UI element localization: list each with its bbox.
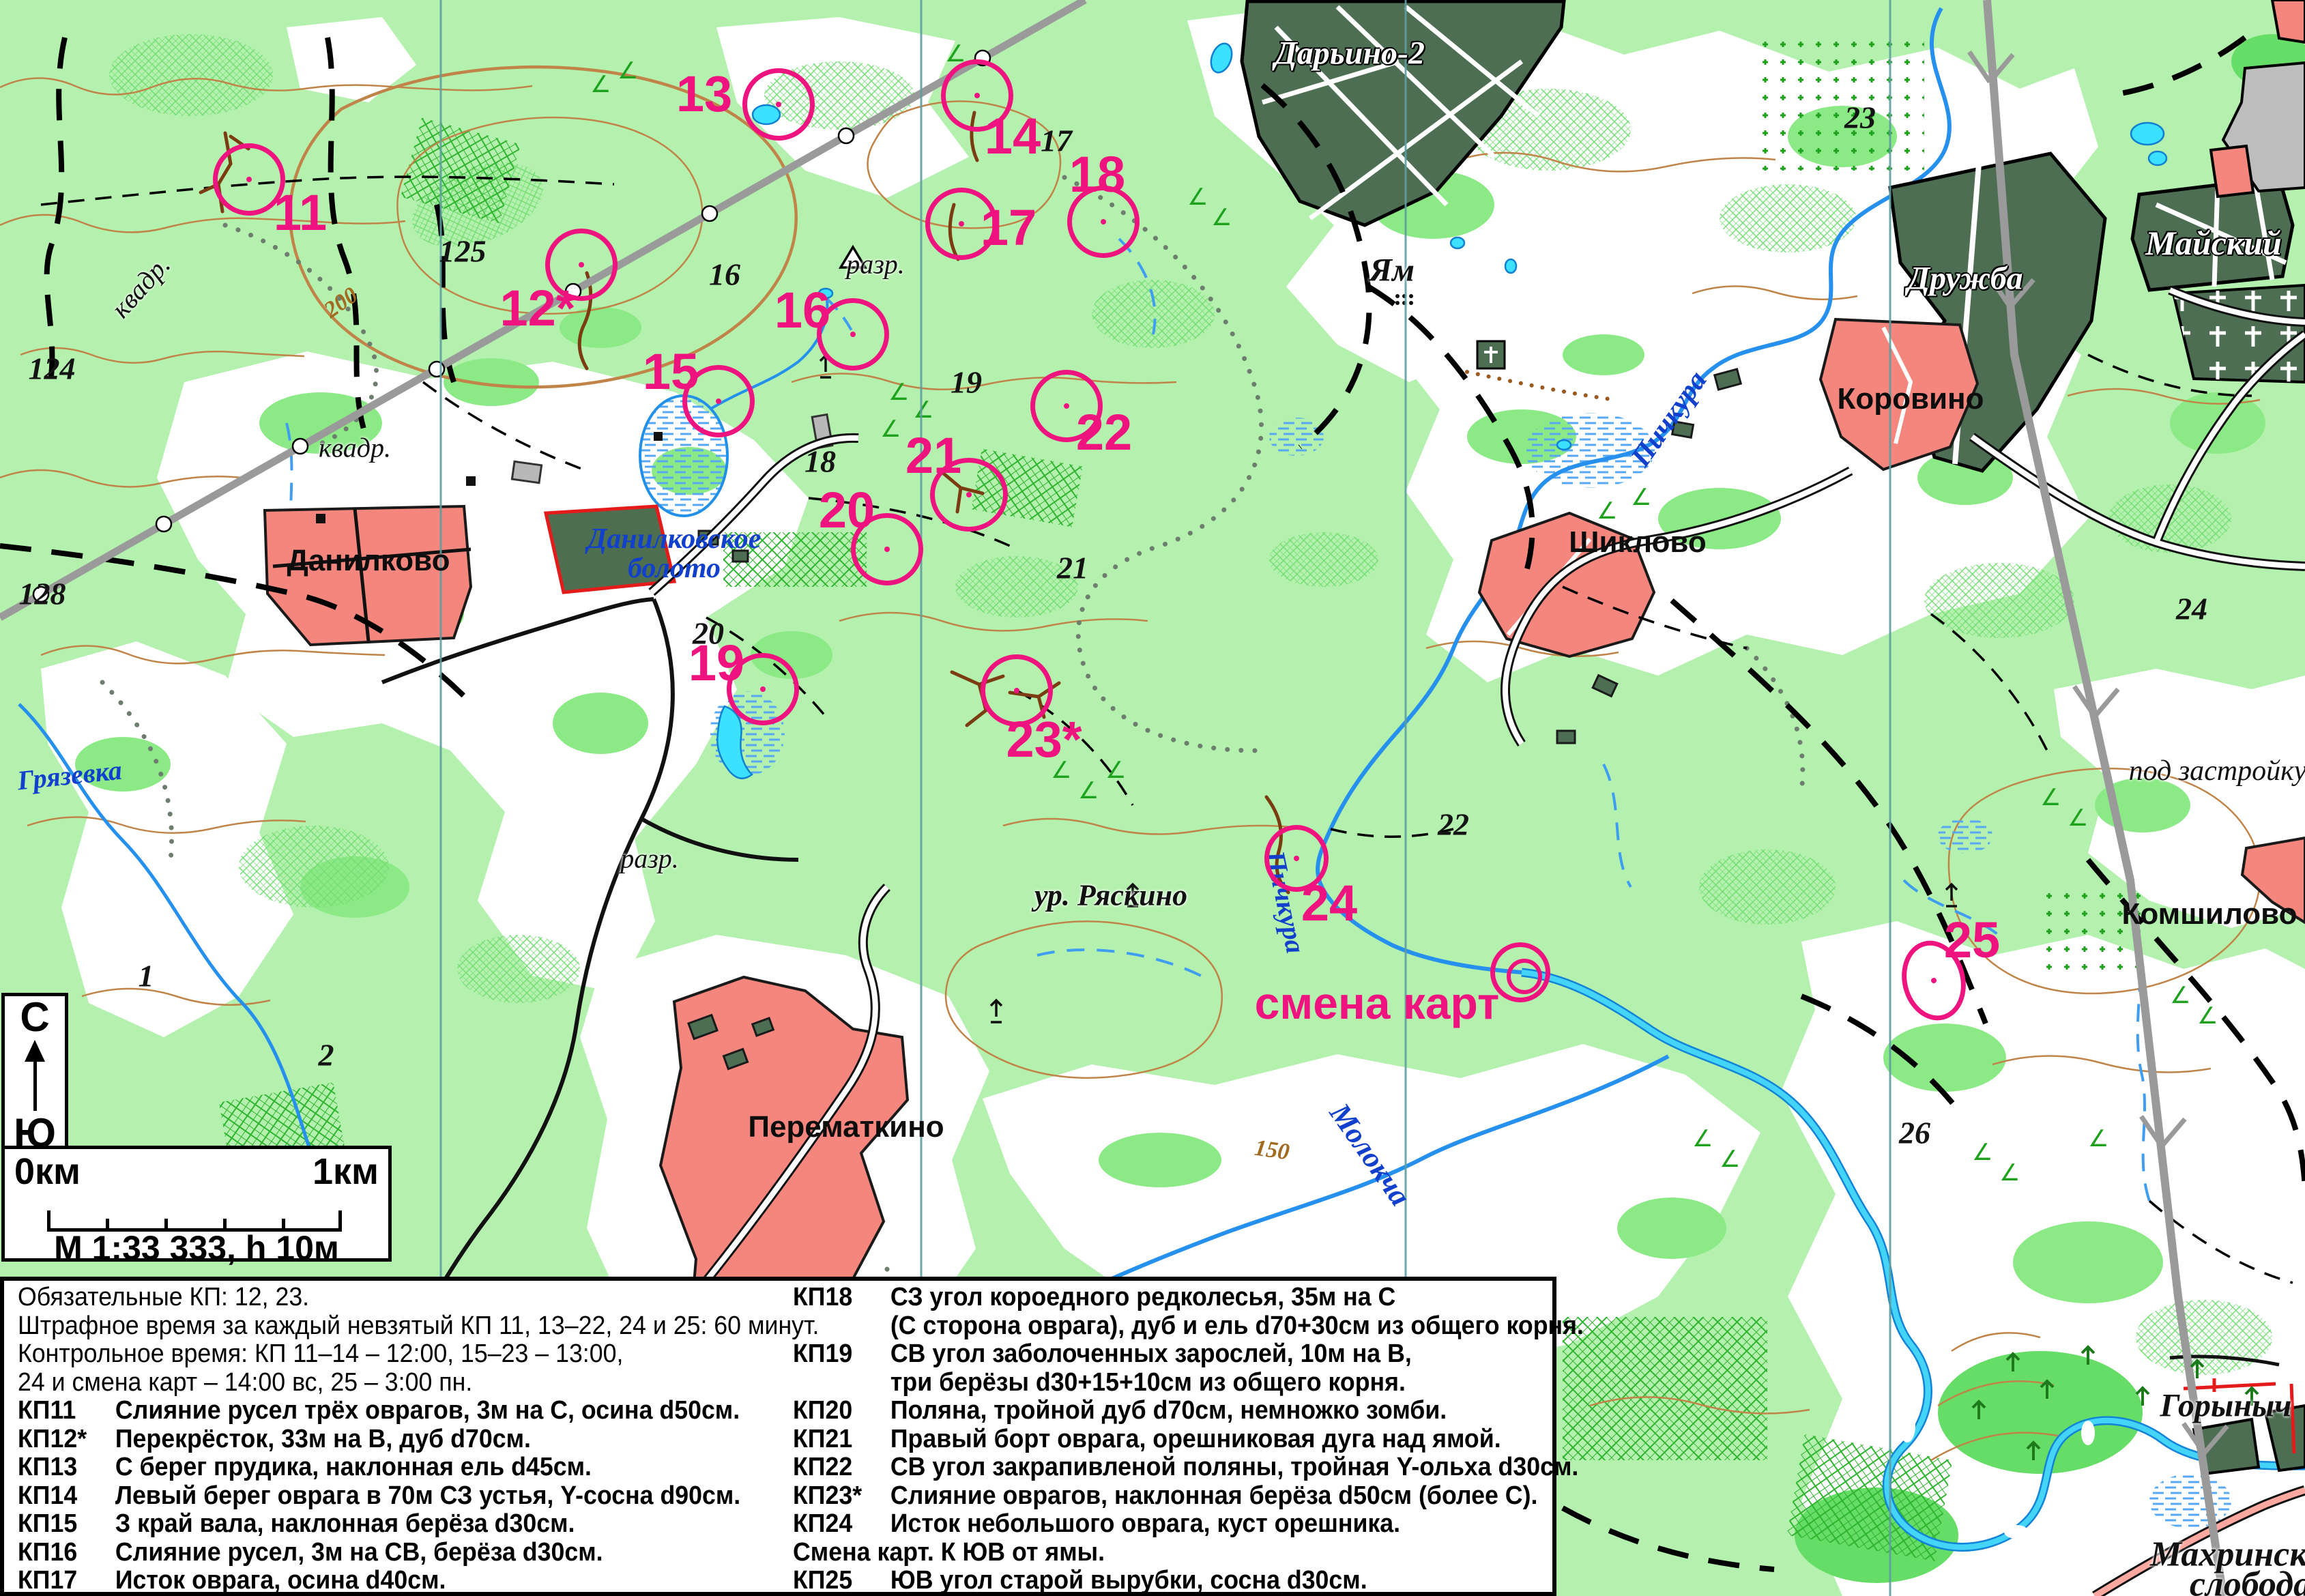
- description-row: КП22СВ угол закрапивленой поляны, тройна…: [793, 1453, 1550, 1481]
- cp-description-text: Левый берег оврага в 70м СЗ устья, Y-сос…: [115, 1481, 740, 1511]
- cp-code: КП21: [793, 1425, 890, 1454]
- description-row: 24 и смена карт – 14:00 вс, 25 – 3:00 пн…: [18, 1368, 774, 1397]
- compass-box: С Ю: [1, 993, 68, 1158]
- orienteering-map-stage: ∠∠∠ ∠∠∠ ∠∠∠ ∠∠∠ ∠∠∠ ∠∠∠ ∠∠∠ ∠∠∠ Данилков…: [0, 0, 2305, 1596]
- description-row: КП11Слияние русел трёх оврагов, 3м на С,…: [18, 1396, 774, 1425]
- cp-description-text: ЮВ угол старой вырубки, сосна d30см.: [890, 1566, 1367, 1595]
- cp-description-text: Обязательные КП: 12, 23.: [18, 1283, 309, 1312]
- compass-north-label: С: [20, 999, 49, 1036]
- control-circle-13: [742, 68, 815, 141]
- description-row: КП21Правый борт оврага, орешниковая дуга…: [793, 1425, 1550, 1453]
- control-number-14: 14: [985, 111, 1041, 162]
- cp-code: КП20: [793, 1396, 890, 1425]
- control-descriptions-box: Обязательные КП: 12, 23.Штрафное время з…: [0, 1277, 1556, 1596]
- description-row: КП20Поляна, тройной дуб d70см, немножко …: [793, 1396, 1550, 1425]
- cp-description-text: три берёзы d30+15+10см из общего корня.: [890, 1368, 1406, 1397]
- scale-box: 0км 1км М 1:33 333, h 10м: [1, 1146, 392, 1262]
- cp-code: КП23*: [793, 1481, 890, 1511]
- cp-description-text: Перекрёсток, 33м на В, дуб d70см.: [115, 1425, 531, 1454]
- cp-description-text: Исток оврага, осина d40см.: [115, 1566, 446, 1595]
- description-row: (С сторона оврага), дуб и ель d70+30см и…: [793, 1311, 1550, 1340]
- cp-code: КП19: [793, 1339, 890, 1369]
- control-number-20: 20: [819, 485, 875, 536]
- control-number-15: 15: [643, 347, 699, 397]
- description-row: КП15З край вала, наклонная берёза d30см.: [18, 1509, 774, 1538]
- description-row: три берёзы d30+15+10см из общего корня.: [793, 1368, 1550, 1397]
- cp-description-text: 24 и смена карт – 14:00 вс, 25 – 3:00 пн…: [18, 1368, 472, 1397]
- cp-description-text: З край вала, наклонная берёза d30см.: [115, 1509, 575, 1539]
- control-number-13: 13: [676, 69, 732, 119]
- description-row: КП12*Перекрёсток, 33м на В, дуб d70см.: [18, 1425, 774, 1453]
- cp-description-text: Правый борт оврага, орешниковая дуга над…: [890, 1425, 1501, 1454]
- control-number-19: 19: [688, 638, 744, 688]
- control-number-11: 11: [274, 188, 327, 238]
- cp-code: КП14: [18, 1481, 115, 1511]
- cp-description-text: Смена карт. К ЮВ от ямы.: [793, 1538, 1105, 1567]
- map-scale-text: М 1:33 333, h 10м: [5, 1228, 388, 1268]
- cp-description-text: Поляна, тройной дуб d70см, немножко зомб…: [890, 1396, 1447, 1425]
- descriptions-left-column: Обязательные КП: 12, 23.Штрафное время з…: [18, 1283, 774, 1595]
- cp-description-text: Слияние оврагов, наклонная берёза d50см …: [890, 1481, 1538, 1511]
- cp-code: КП25: [793, 1566, 890, 1595]
- description-row: КП17Исток оврага, осина d40см.: [18, 1566, 774, 1595]
- description-row: КП13С берег прудика, наклонная ель d45см…: [18, 1453, 774, 1481]
- cp-code: КП17: [18, 1566, 115, 1595]
- description-row: КП19СВ угол заболоченных зарослей, 10м н…: [793, 1339, 1550, 1368]
- cp-description-text: СВ угол закрапивленой поляны, тройная Y-…: [890, 1453, 1578, 1482]
- cp-description-text: СЗ угол короедного редколесья, 35м на С: [890, 1283, 1395, 1312]
- control-number-12*: 12*: [499, 283, 575, 334]
- description-row: Обязательные КП: 12, 23.: [18, 1283, 774, 1311]
- cp-code: КП18: [793, 1283, 890, 1312]
- cp-code: КП24: [793, 1509, 890, 1539]
- description-row: КП23*Слияние оврагов, наклонная берёза d…: [793, 1481, 1550, 1510]
- cp-code: КП11: [18, 1396, 115, 1425]
- control-number-17: 17: [981, 203, 1036, 253]
- cp-code: КП15: [18, 1509, 115, 1539]
- north-arrow-icon: [25, 1040, 45, 1111]
- description-row: КП18СЗ угол короедного редколесья, 35м н…: [793, 1283, 1550, 1311]
- cp-description-text: Контрольное время: КП 11–14 – 12:00, 15–…: [18, 1339, 623, 1369]
- cp-description-text: Исток небольшого оврага, куст орешника.: [890, 1509, 1400, 1539]
- scale-zero-label: 0км: [14, 1150, 81, 1193]
- control-number-22: 22: [1076, 407, 1132, 458]
- scale-one-km-label: 1км: [313, 1150, 379, 1193]
- cp-description-text: (С сторона оврага), дуб и ель d70+30см и…: [890, 1311, 1584, 1341]
- control-number-23*: 23*: [1006, 714, 1082, 765]
- control-number-21: 21: [905, 431, 961, 481]
- description-row: КП24Исток небольшого оврага, куст орешни…: [793, 1509, 1550, 1538]
- cp-description-text: Слияние русел трёх оврагов, 3м на С, оси…: [115, 1396, 740, 1425]
- description-row: КП16Слияние русел, 3м на СВ, берёза d30с…: [18, 1538, 774, 1567]
- description-row: Контрольное время: КП 11–14 – 12:00, 15–…: [18, 1339, 774, 1368]
- description-row: КП14Левый берег оврага в 70м СЗ устья, Y…: [18, 1481, 774, 1510]
- cp-code: КП16: [18, 1538, 115, 1567]
- control-number-18: 18: [1069, 149, 1125, 200]
- cp-description-text: Штрафное время за каждый невзятый КП 11,…: [18, 1311, 819, 1341]
- description-row: Штрафное время за каждый невзятый КП 11,…: [18, 1311, 774, 1340]
- control-number-24: 24: [1301, 878, 1357, 929]
- cp-description-text: С берег прудика, наклонная ель d45см.: [115, 1453, 592, 1482]
- cp-code: КП22: [793, 1453, 890, 1482]
- control-number-25: 25: [1944, 915, 2000, 966]
- descriptions-right-column: КП18СЗ угол короедного редколесья, 35м н…: [793, 1283, 1550, 1595]
- cp-description-text: СВ угол заболоченных зарослей, 10м на В,: [890, 1339, 1412, 1369]
- map-change-inner-circle: [1507, 959, 1542, 994]
- map-change-label: смена карт: [1255, 981, 1500, 1026]
- control-number-16: 16: [774, 285, 830, 336]
- cp-code: КП13: [18, 1453, 115, 1482]
- cp-description-text: Слияние русел, 3м на СВ, берёза d30см.: [115, 1538, 603, 1567]
- description-row: КП25ЮВ угол старой вырубки, сосна d30см.: [793, 1566, 1550, 1595]
- cp-code: КП12*: [18, 1425, 115, 1454]
- description-row: Смена карт. К ЮВ от ямы.: [793, 1538, 1550, 1567]
